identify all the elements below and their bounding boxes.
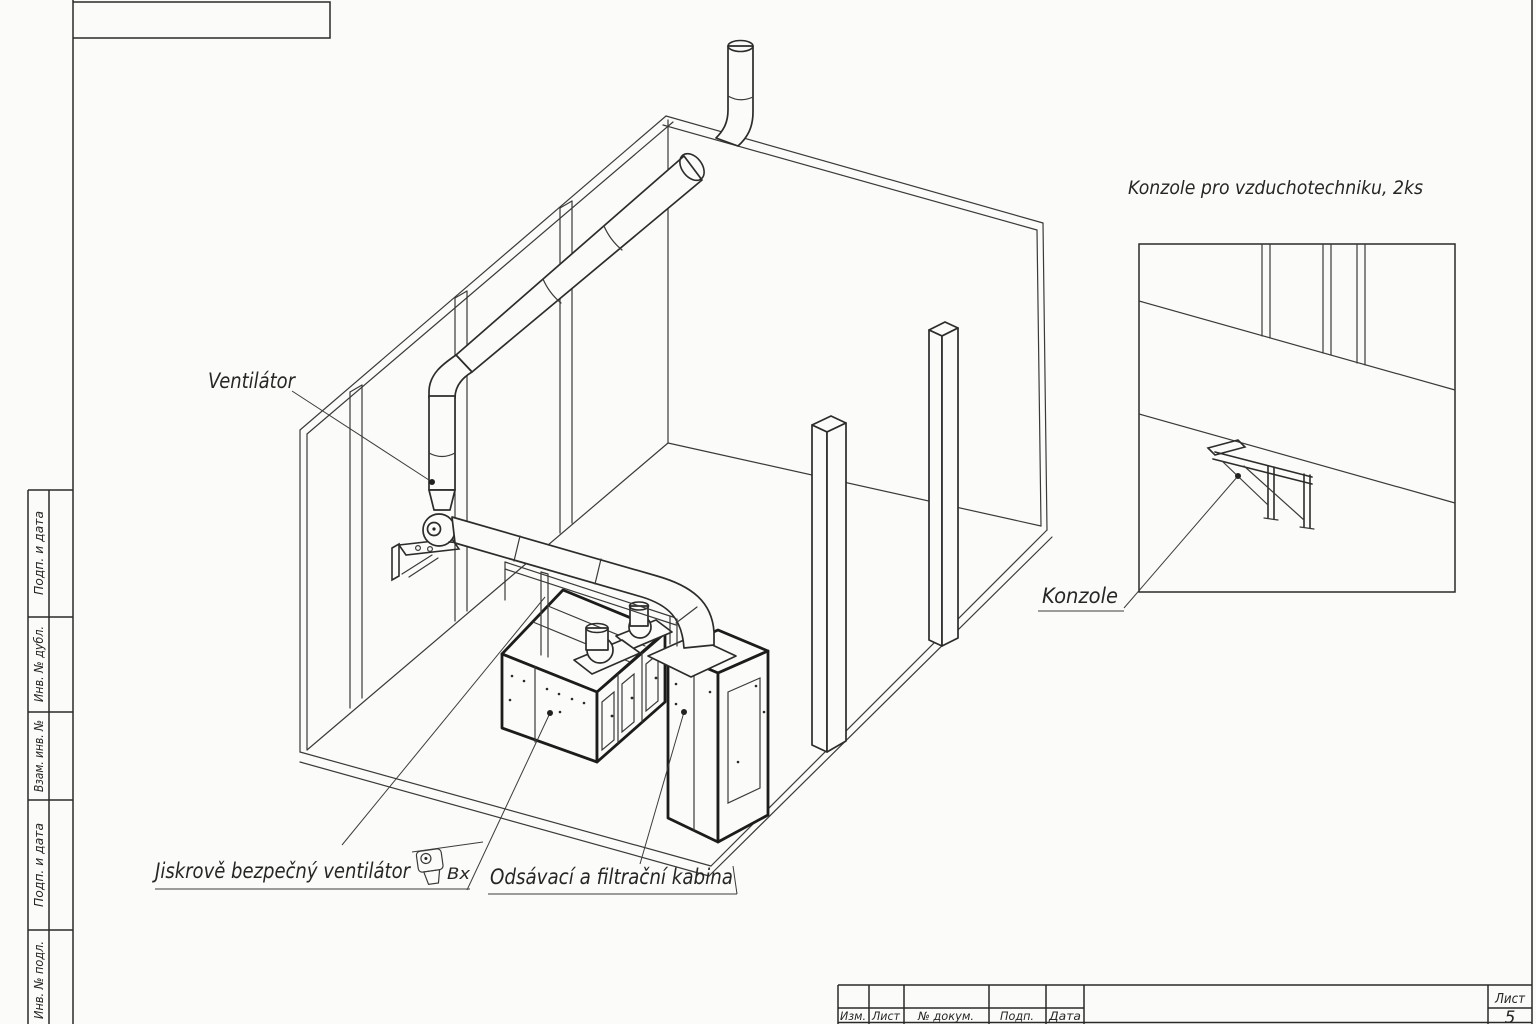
detail-inset [1139, 244, 1455, 592]
sidebar-labels: Подп. и дата Инв. № дубл. Взам. инв. № П… [31, 511, 46, 1019]
detail-wall-studs [1262, 244, 1365, 365]
title-col-docnum: № докум. [917, 1009, 974, 1023]
leader-dot-ventilator [429, 479, 435, 485]
sidebar-cell-label: Инв. № дубл. [31, 626, 46, 702]
door-post-right [929, 322, 958, 646]
title-col-list: Лист [871, 1009, 900, 1023]
sheet-number: 5 [1505, 1008, 1516, 1024]
title-block: Изм. Лист № докум. Подп. Дата Лист 5 [838, 985, 1532, 1024]
wall-stud-1 [350, 385, 362, 708]
leader-dot-spark-fan [547, 710, 553, 716]
wall-stud-3 [560, 201, 572, 533]
sidebar-cell-label: Подп. и дата [31, 511, 46, 595]
label-konzole-title: Konzole pro vzduchotechniku, 2ks [1128, 177, 1423, 199]
sidebar-cell-label: Инв. № подл. [31, 941, 46, 1019]
leader-dot-suction-cabin [681, 709, 687, 715]
label-spark-fan: Jiskrově bezpečný ventilátor [152, 859, 412, 883]
sheet-label: Лист [1494, 992, 1525, 1007]
title-col-data: Дата [1048, 1009, 1081, 1023]
detail-console-bracket [1208, 440, 1314, 529]
title-col-izm: Изм. [840, 1009, 866, 1023]
leader-dot-konzole [1235, 473, 1241, 479]
sidebar-cell-label: Взам. инв. № [31, 720, 46, 792]
exhaust-chimney [716, 41, 753, 147]
drawing-sheet: Ventilátor Konzole pro vzduchotechniku, … [0, 0, 1536, 1024]
label-spark-fan-suffix: Вх [447, 864, 471, 883]
label-konzole: Konzole [1042, 584, 1118, 608]
label-ventilator: Ventilátor [208, 369, 296, 393]
fan-inlet-icon [416, 848, 445, 885]
wall-stud-2 [455, 291, 467, 621]
sidebar-cell-label: Подп. и дата [31, 823, 46, 907]
label-suction-cabin: Odsávací a filtrační kabina [490, 865, 733, 889]
door-post-left [812, 416, 846, 752]
filtration-cabin-assembly [502, 562, 768, 842]
title-col-podp: Подп. [1000, 1009, 1034, 1023]
